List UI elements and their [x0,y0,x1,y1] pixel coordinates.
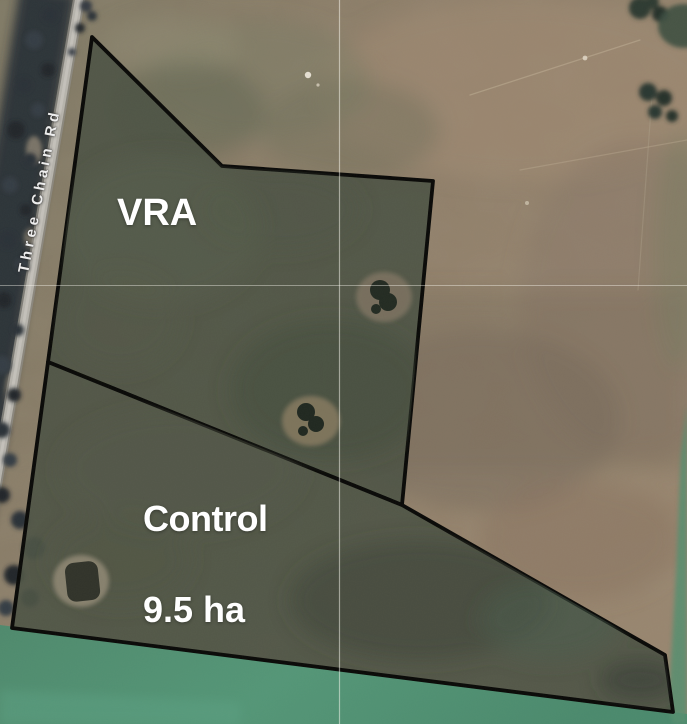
control-zone-label: Control [143,501,267,537]
vra-zone-label: VRA [117,194,197,232]
satellite-map-canvas: VRA Control 9.5 ha Three Chain Rd [0,0,687,724]
image-grain [0,0,687,724]
satellite-imagery [0,0,687,724]
control-area-label: 9.5 ha [143,592,245,628]
